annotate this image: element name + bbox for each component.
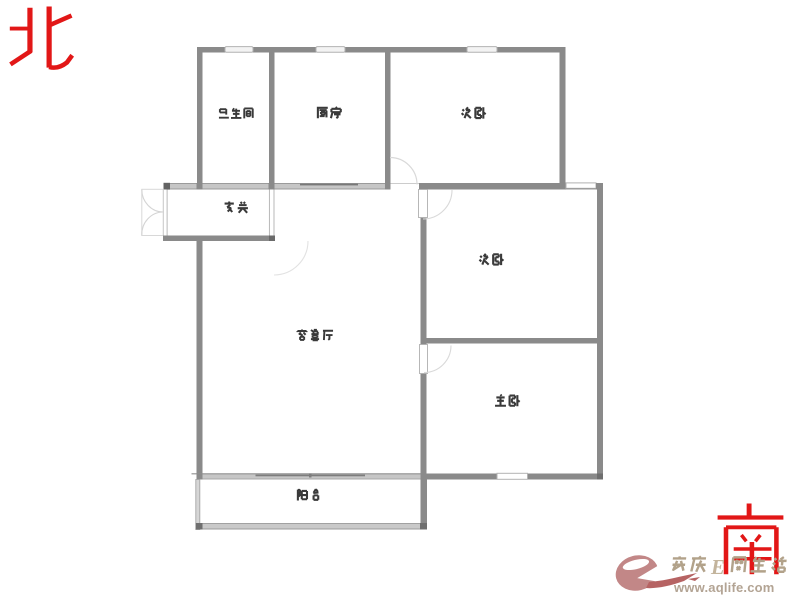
svg-text:E: E xyxy=(710,555,725,579)
svg-text:www.aqlife.com: www.aqlife.com xyxy=(673,580,775,595)
